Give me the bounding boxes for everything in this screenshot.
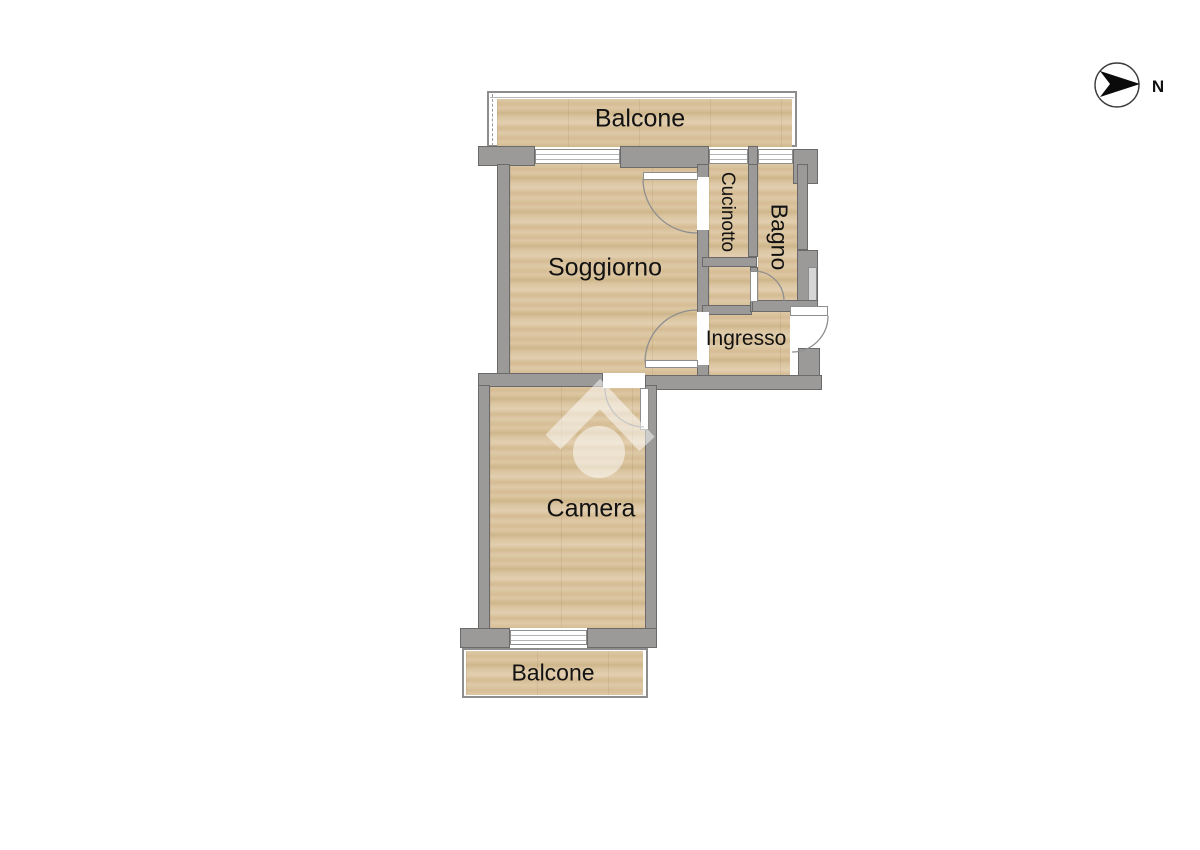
- wall-cucinotto-right: [748, 164, 758, 257]
- wall-top-middle: [620, 146, 709, 168]
- cucinotto-label: Cucinotto: [716, 172, 738, 252]
- bagno-label: Bagno: [766, 204, 793, 271]
- wall-camera-bottom-right-block: [587, 628, 657, 648]
- camera-label: Camera: [547, 495, 636, 524]
- entrance-door-swing: [792, 316, 828, 352]
- bagno-door-leaf: [750, 271, 758, 302]
- ingresso-door-leaf: [645, 360, 698, 368]
- north-arrow-icon: [1095, 63, 1140, 107]
- wall-cucinotto-bottom: [702, 257, 757, 267]
- cucinotto-door-opening: [697, 177, 709, 230]
- wall-soggiorno-left: [497, 164, 510, 378]
- camera-window: [510, 630, 587, 645]
- ingresso-label: Ingresso: [706, 327, 787, 351]
- balcony-top-label: Balcone: [595, 105, 685, 134]
- wall-ingresso-bottom: [645, 375, 822, 390]
- bagno-anteroom-floor: [709, 267, 750, 305]
- balcony-top-rail-line: [490, 97, 794, 98]
- wall-bagno-right: [797, 164, 808, 250]
- wall-top-left-pillar: [478, 146, 535, 166]
- camera-door-opening: [603, 373, 645, 388]
- soggiorno-label: Soggiorno: [548, 254, 662, 283]
- bagno-top-window: [758, 149, 793, 164]
- cucinotto-door-leaf: [643, 172, 698, 180]
- wall-camera-bottom-left-block: [460, 628, 510, 648]
- wall-soggiorno-bottom-left: [478, 373, 603, 387]
- wall-anteroom-bottom: [702, 305, 752, 315]
- balcony-bottom-label: Balcone: [511, 660, 594, 687]
- camera-door-leaf: [640, 388, 649, 430]
- cucinotto-window: [709, 149, 748, 164]
- floor-plan: Balcone Soggiorno Cucinotto Bagno Ingres…: [0, 0, 1200, 850]
- entrance-door-leaf: [790, 306, 828, 316]
- balcony-top-rail-dash: [492, 94, 493, 146]
- compass-north-label: N: [1152, 77, 1164, 97]
- soggiorno-window: [535, 149, 620, 164]
- wall-camera-left: [478, 385, 490, 630]
